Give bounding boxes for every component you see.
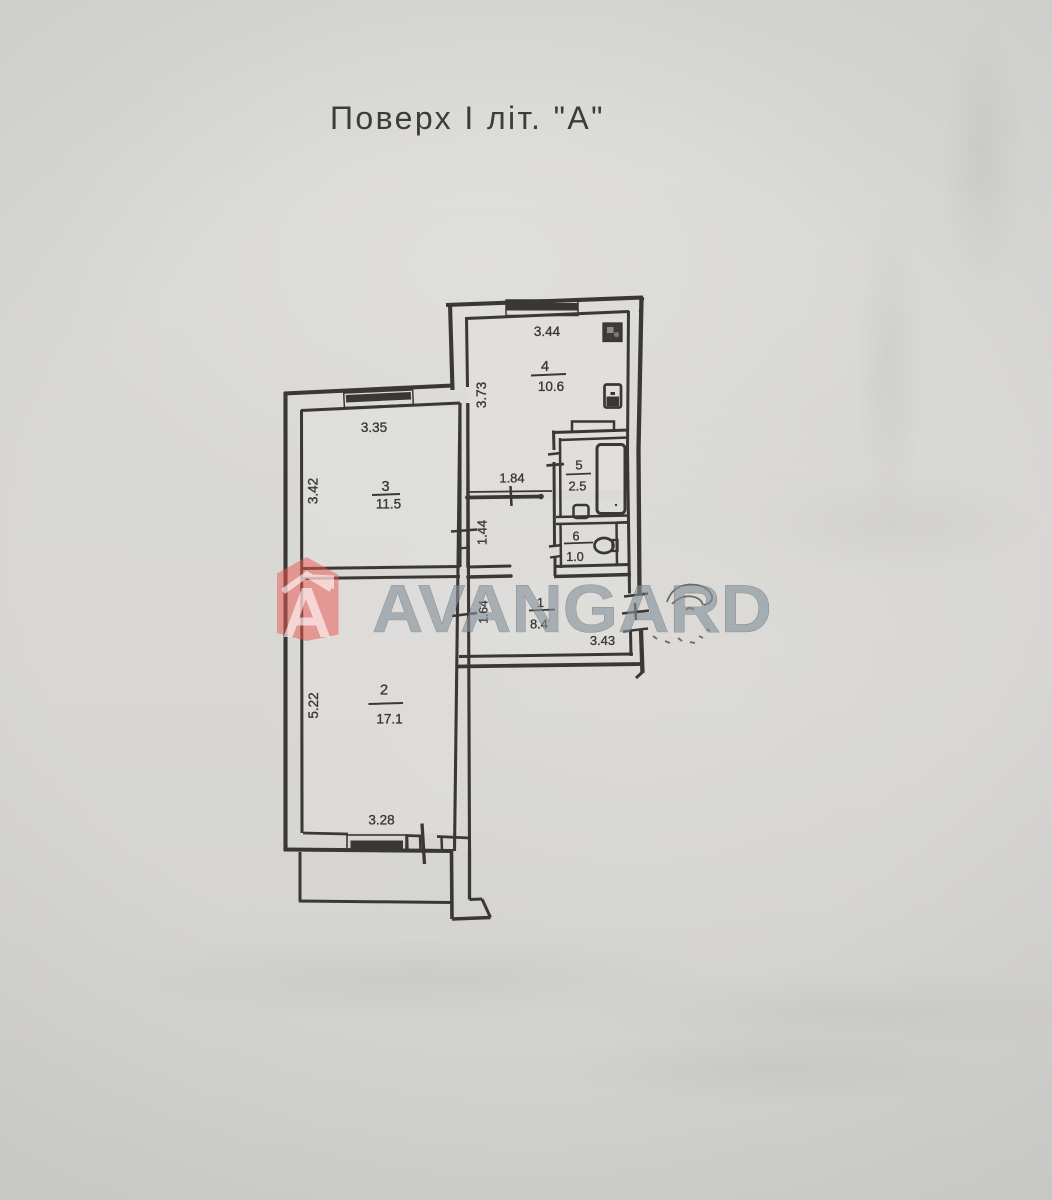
svg-text:1.0: 1.0: [566, 550, 583, 564]
svg-text:6: 6: [573, 530, 580, 544]
svg-text:3.28: 3.28: [368, 813, 394, 828]
svg-text:3.42: 3.42: [306, 478, 321, 504]
svg-text:2: 2: [380, 683, 388, 699]
svg-text:2.5: 2.5: [568, 479, 586, 494]
svg-text:5: 5: [575, 458, 582, 473]
svg-text:1.44: 1.44: [475, 520, 490, 545]
svg-text:10.6: 10.6: [538, 379, 564, 394]
svg-text:1.84: 1.84: [499, 471, 524, 486]
svg-text:3: 3: [381, 479, 389, 495]
svg-text:AVANGARD: AVANGARD: [372, 571, 772, 647]
svg-text:17.1: 17.1: [376, 712, 402, 727]
svg-text:3.35: 3.35: [361, 420, 387, 435]
svg-text:5.22: 5.22: [306, 692, 321, 718]
svg-text:Поверх І літ. "А": Поверх І літ. "А": [330, 100, 605, 136]
svg-text:3.73: 3.73: [474, 382, 489, 408]
svg-text:3.44: 3.44: [534, 324, 561, 339]
svg-text:4: 4: [541, 359, 549, 375]
svg-text:11.5: 11.5: [376, 497, 401, 512]
